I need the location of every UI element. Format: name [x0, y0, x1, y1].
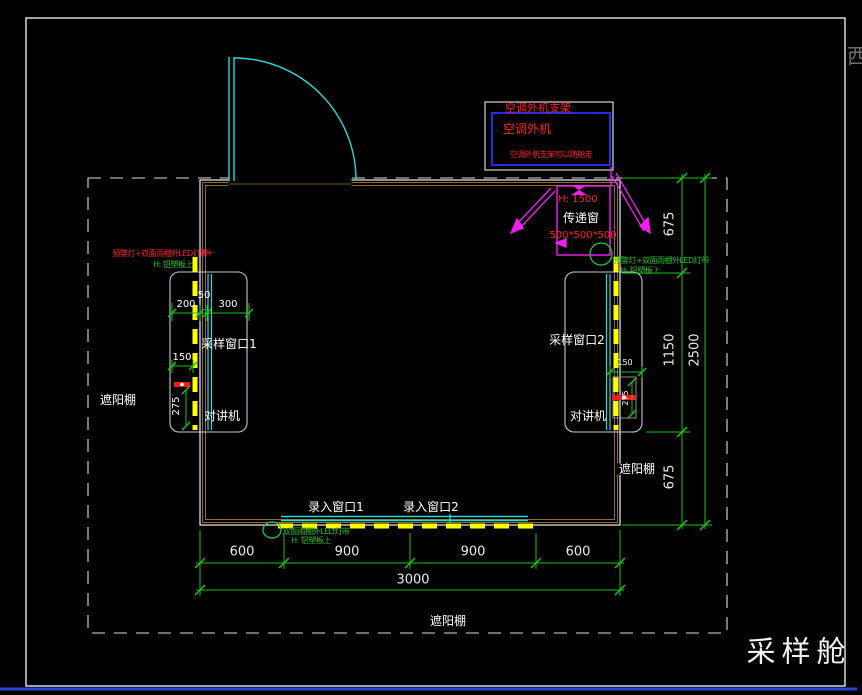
canopy-bottom-label: 遮阳棚: [427, 615, 469, 627]
dim-3000: 3000: [396, 574, 429, 587]
transfer-size-label: 500*500*500: [549, 231, 616, 241]
left-led-note-2: H: 铝塑板上: [153, 261, 193, 269]
drawing-title: 采样舱: [746, 638, 851, 667]
sampling-window-1-label: 采样窗口1: [201, 338, 257, 350]
dim-300: 300: [218, 300, 237, 310]
dim-600-b: 600: [566, 546, 591, 559]
transfer-window-label: 传递窗: [563, 212, 599, 224]
canopy-right-label: 遮阳棚: [616, 463, 658, 475]
dim-150-right: 150: [617, 359, 632, 367]
right-led-note-1: 预警灯+双面雨棚外LED灯带: [613, 257, 708, 265]
door-arc: [234, 58, 356, 180]
ac-note: 空调外机支架可以随舱走: [510, 151, 593, 159]
cad-canvas: 空调外机支架 空调外机 空调外机支架可以随舱走 H: 1500 传递窗 500*…: [0, 0, 862, 695]
intercom-2-label: 对讲机: [570, 410, 606, 422]
canopy-left-label: 遮阳棚: [100, 394, 136, 406]
entry-window-2-label: 录入窗口2: [403, 501, 459, 513]
ac-unit-label: 空调外机: [503, 123, 551, 135]
transfer-height-label: H: 1500: [558, 195, 598, 205]
dim-150-left: 150: [172, 353, 191, 363]
dim-200: 200: [176, 300, 195, 310]
ac-bracket-label: 空调外机支架: [505, 103, 571, 114]
left-led-mark: 2+: [200, 250, 213, 259]
door-swing: [229, 57, 356, 181]
dim-900-b: 900: [461, 546, 486, 559]
entry-window-1-label: 录入窗口1: [308, 501, 364, 513]
dim-275-left: 275: [172, 396, 182, 415]
dim-275-right: 275: [622, 390, 630, 405]
dim-1150: 1150: [664, 333, 677, 366]
detail-circle-right: [590, 243, 612, 265]
drawing-geometry: [0, 0, 862, 695]
bottom-led-note-2: H: 铝塑板上: [291, 537, 331, 545]
compass-west-label: 西: [847, 47, 862, 68]
dim-675-bottom: 675: [664, 465, 677, 490]
intercom-1-label: 对讲机: [204, 410, 240, 422]
bottom-led-note-1: 双面雨棚外LED灯带: [283, 528, 350, 536]
dim-600-a: 600: [230, 546, 255, 559]
dim-50: 50: [198, 291, 211, 301]
dim-2500: 2500: [689, 333, 702, 366]
dim-900-a: 900: [335, 546, 360, 559]
left-led-note-1: 预警灯+双面雨棚外LED灯带: [112, 250, 207, 258]
sheet-border: [26, 18, 845, 686]
sampling-window-2-label: 采样窗口2: [549, 334, 605, 346]
dim-675-top: 675: [664, 212, 677, 237]
right-led-note-2: H: 铝塑板上: [620, 267, 660, 275]
